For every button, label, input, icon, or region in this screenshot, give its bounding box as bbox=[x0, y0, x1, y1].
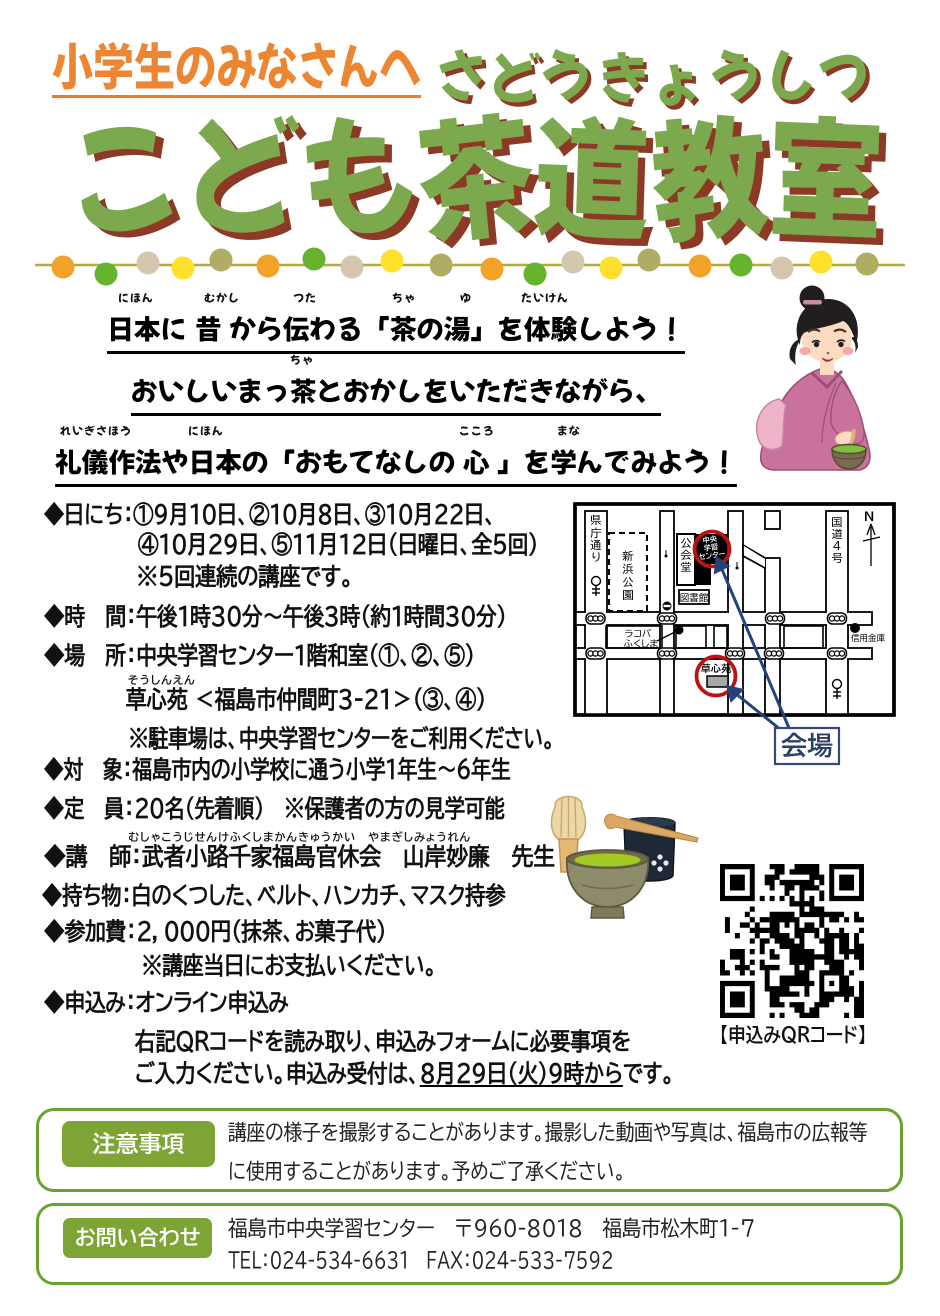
svg-text:庁: 庁 bbox=[591, 528, 602, 539]
svg-text:公: 公 bbox=[681, 537, 692, 549]
svg-text:浜: 浜 bbox=[623, 563, 634, 575]
svg-text:園: 園 bbox=[623, 590, 634, 601]
svg-text:公: 公 bbox=[623, 576, 634, 588]
svg-text:ふくしま: ふくしま bbox=[624, 639, 658, 649]
svg-text:会場: 会場 bbox=[781, 732, 833, 759]
svg-text:り: り bbox=[591, 551, 601, 563]
svg-text:4: 4 bbox=[833, 541, 841, 552]
svg-text:新: 新 bbox=[622, 551, 634, 562]
svg-text:通: 通 bbox=[591, 539, 602, 551]
svg-text:信用金庫: 信用金庫 bbox=[851, 633, 886, 643]
svg-text:図書館: 図書館 bbox=[680, 593, 709, 603]
svg-text:N: N bbox=[864, 511, 874, 523]
svg-text:会: 会 bbox=[681, 550, 693, 561]
svg-text:ラコバ: ラコバ bbox=[625, 628, 652, 639]
svg-text:号: 号 bbox=[832, 553, 843, 564]
svg-text:国: 国 bbox=[832, 517, 843, 528]
svg-text:道: 道 bbox=[832, 528, 843, 540]
svg-text:堂: 堂 bbox=[681, 562, 692, 573]
svg-text:草心苑: 草心苑 bbox=[701, 663, 732, 674]
svg-text:県: 県 bbox=[591, 515, 602, 526]
